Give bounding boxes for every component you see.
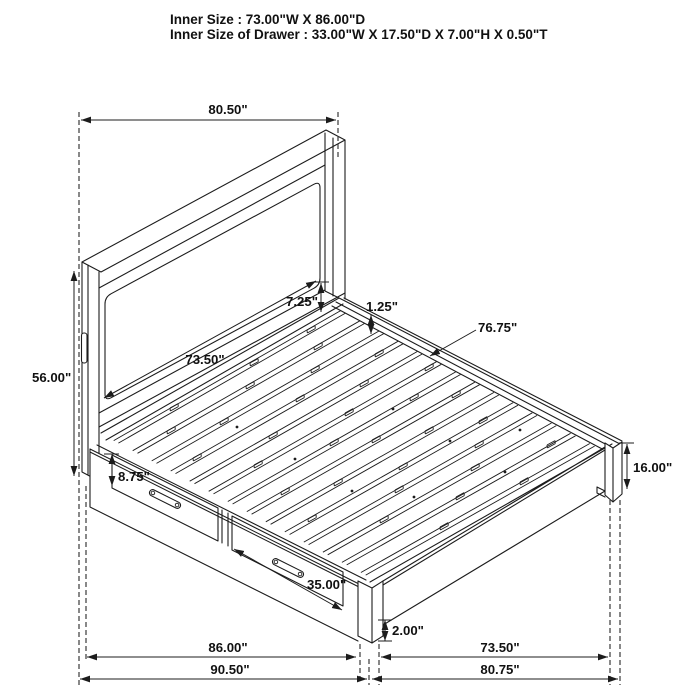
technical-drawing-canvas: 80.50" 56.00" 73.50" 7.25" 1.25" 76.75" … — [0, 0, 700, 700]
label-overall-depth: 90.50" — [210, 662, 249, 677]
left-post-slot — [82, 333, 88, 363]
foot-left-leg — [358, 581, 383, 643]
label-headboard-height: 56.00" — [32, 370, 71, 385]
label-foot-height: 16.00" — [633, 460, 672, 475]
headboard-top-cap — [82, 130, 345, 272]
label-slat-span: 76.75" — [478, 320, 517, 335]
headboard-right-post — [325, 133, 345, 301]
label-deck-lip: 1.25" — [366, 299, 398, 314]
label-drawer-width: 35.00" — [307, 577, 346, 592]
label-inner-width: 73.50" — [480, 640, 519, 655]
drawer-size-line: Inner Size of Drawer : 33.00"W X 17.50"D… — [170, 27, 548, 42]
label-headboard-inner-width: 73.50" — [185, 352, 224, 367]
label-drawer-height: 8.75" — [118, 469, 150, 484]
label-clearance: 2.00" — [392, 623, 424, 638]
dim-slat-span-leader — [430, 330, 476, 356]
inner-size-line: Inner Size : 73.00"W X 86.00"D — [170, 12, 365, 27]
label-base-depth: 86.00" — [208, 640, 247, 655]
headboard-left-post — [82, 262, 99, 481]
label-overall-width: 80.75" — [480, 662, 519, 677]
title-block: Inner Size : 73.00"W X 86.00"D Inner Siz… — [170, 12, 548, 42]
label-headboard-width: 80.50" — [208, 102, 247, 117]
headboard-top-rail-line — [99, 165, 325, 288]
label-panel-to-deck: 7.25" — [286, 294, 318, 309]
bed-dimension-drawing: 80.50" 56.00" 73.50" 7.25" 1.25" 76.75" … — [0, 0, 700, 700]
